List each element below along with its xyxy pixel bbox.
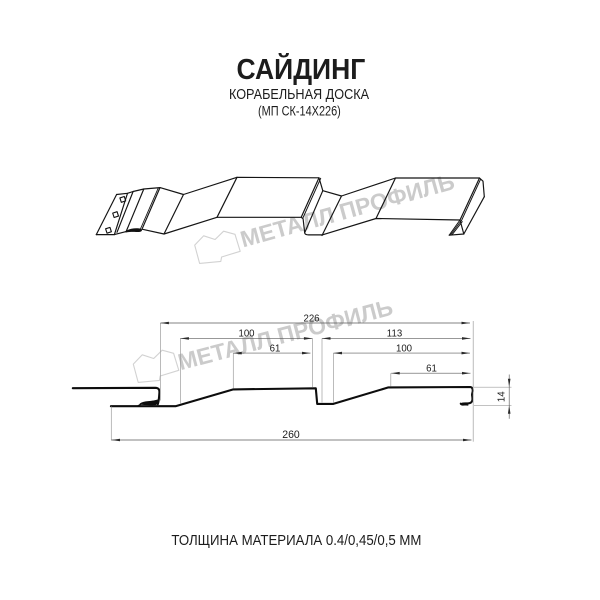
- svg-text:61: 61: [426, 363, 437, 374]
- svg-text:14: 14: [496, 391, 507, 402]
- svg-text:260: 260: [282, 429, 299, 441]
- svg-text:ТОЛЩИНА МАТЕРИАЛА 0.4/0,45/0,5: ТОЛЩИНА МАТЕРИАЛА 0.4/0,45/0,5 ММ: [171, 531, 421, 548]
- svg-text:61: 61: [270, 343, 281, 354]
- svg-text:226: 226: [303, 313, 319, 324]
- svg-text:100: 100: [396, 343, 412, 354]
- svg-text:113: 113: [387, 328, 403, 339]
- svg-text:САЙДИНГ: САЙДИНГ: [237, 53, 366, 85]
- svg-text:(МП СК-14Х226): (МП СК-14Х226): [258, 103, 341, 119]
- svg-text:100: 100: [238, 328, 254, 339]
- svg-text:КОРАБЕЛЬНАЯ ДОСКА: КОРАБЕЛЬНАЯ ДОСКА: [229, 86, 370, 102]
